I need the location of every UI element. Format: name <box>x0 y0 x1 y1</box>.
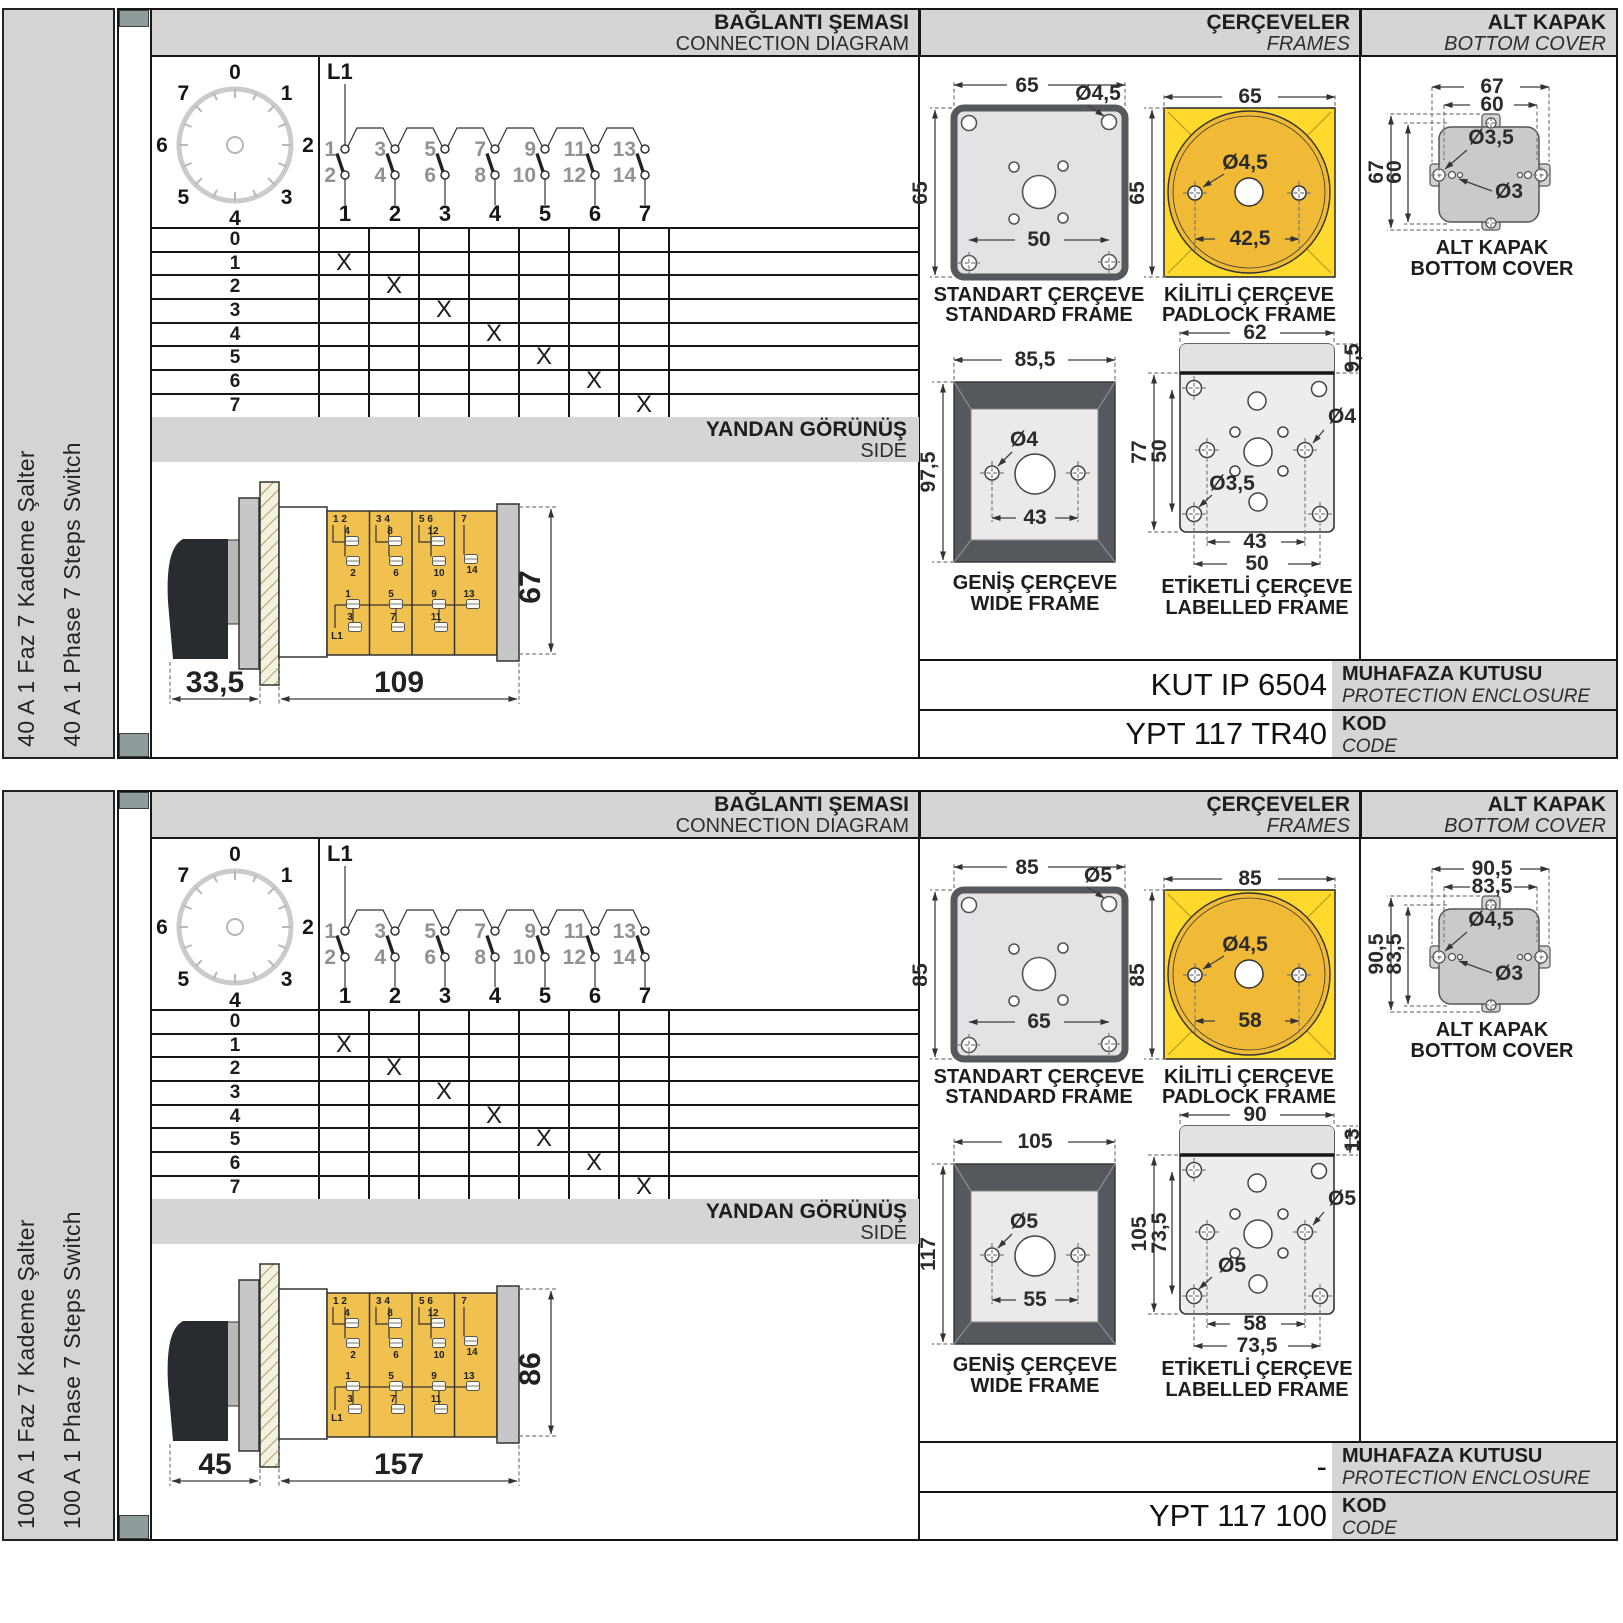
step-cell <box>470 1082 520 1104</box>
dial-pos-2: 2 <box>302 134 314 157</box>
dim-height: 117 <box>917 1237 940 1271</box>
step-cell <box>520 229 570 251</box>
dial-pos-7: 7 <box>178 864 190 887</box>
step-cell <box>520 1106 570 1128</box>
step-cell <box>470 1153 520 1175</box>
dim-hole-right: Ø4 <box>1328 405 1356 428</box>
step-cell <box>520 1035 570 1057</box>
corner-square-top <box>119 10 149 27</box>
step-cell <box>620 371 670 393</box>
dim-height: 65 <box>1126 181 1149 205</box>
step-cell: X <box>470 324 520 346</box>
step-cell <box>570 347 620 369</box>
step-cell <box>320 1153 370 1175</box>
clip-label: 5 <box>388 589 394 600</box>
step-table: 01X2X3X4X5X6X7X <box>152 227 919 419</box>
product-code: YPT 117 TR40 <box>919 711 1332 757</box>
clip-label: 4 <box>344 526 350 537</box>
step-cell <box>520 276 570 298</box>
contact-schematic: L1 1 3 5 7 9 11 13 2 4 <box>320 57 919 227</box>
dim-pitch: 42,5 <box>1230 227 1271 250</box>
labelled-frame-title-tr: ETİKETLİ ÇERÇEVE <box>1161 1357 1352 1380</box>
step-cell: X <box>320 253 370 275</box>
step-cell <box>520 1153 570 1175</box>
pole-number: 4 <box>489 983 502 1008</box>
step-cell-rest <box>670 300 919 322</box>
dim-pitch: 58 <box>1238 1009 1262 1032</box>
dim-width: 62 <box>1243 321 1266 344</box>
step-row: 2X <box>152 276 919 300</box>
step-cell: X <box>370 276 420 298</box>
wide-frame-title-tr: GENİŞ ÇERÇEVE <box>953 1353 1117 1376</box>
side-view-title-en: SIDE <box>860 1223 907 1244</box>
dim-width: 85 <box>1015 856 1039 879</box>
step-row: 5X <box>152 1129 919 1153</box>
labelled-frame-figure: 62 9,5 77 50 Ø4 Ø3,5 43 50 ETİKETLİ ÇERÇ… <box>1142 324 1372 624</box>
step-row: 3X <box>152 1082 919 1106</box>
step-cell <box>420 347 470 369</box>
step-cell <box>420 1153 470 1175</box>
dim-pitch: 50 <box>1027 228 1050 251</box>
pole-number: 5 <box>539 983 551 1008</box>
padlock-frame-figure: 85 Ø4,5 85 58 KİLİTLİ ÇERÇEVE PADLOCK FR… <box>1142 844 1364 1106</box>
pole-number: 7 <box>639 983 651 1008</box>
section-header: BAĞLANTI ŞEMASI CONNECTION DIAGRAM ÇERÇE… <box>152 10 1616 57</box>
section-pair-label: 3 4 <box>376 1296 390 1307</box>
enclosure-label: MUHAFAZA KUTUSU PROTECTION ENCLOSURE <box>1332 661 1616 709</box>
pole-number: 5 <box>539 201 551 226</box>
terminal-bottom: 4 <box>374 946 386 969</box>
step-cell <box>420 1035 470 1057</box>
dial-pos-3: 3 <box>281 968 293 991</box>
dim-length: 109 <box>374 666 424 699</box>
side-view-band: YANDAN GÖRÜNÜŞ SIDE <box>152 1199 919 1244</box>
dim-height: 86 <box>514 1352 547 1385</box>
dim-pitch1: 43 <box>1243 530 1266 553</box>
step-cell <box>420 276 470 298</box>
clip-label: 1 <box>345 1371 351 1382</box>
section-pair-label: 7 <box>461 514 467 525</box>
wide-frame-title-tr: GENİŞ ÇERÇEVE <box>953 571 1117 594</box>
dial-pos-3: 3 <box>281 186 293 209</box>
dial-pos-1: 1 <box>281 82 293 105</box>
dim-width: 65 <box>1015 74 1039 97</box>
corner-square-top <box>119 792 149 809</box>
dial-pos-6: 6 <box>156 916 168 939</box>
step-cell <box>520 1082 570 1104</box>
product-panel-100a: BAĞLANTI ŞEMASI CONNECTION DIAGRAM ÇERÇE… <box>117 790 1618 1541</box>
step-cell <box>520 300 570 322</box>
step-cell <box>620 1129 670 1151</box>
pole-number: 1 <box>339 983 351 1008</box>
enclosure-label-tr: MUHAFAZA KUTUSU <box>1342 663 1616 686</box>
terminal-bottom: 6 <box>424 946 436 969</box>
dial-pos-2: 2 <box>302 916 314 939</box>
step-cell <box>520 253 570 275</box>
dim-height: 97,5 <box>917 451 940 492</box>
dim-width: 65 <box>1238 85 1262 108</box>
dial-pos-0: 0 <box>229 843 241 866</box>
clip-label: 4 <box>344 1308 350 1319</box>
header-cover: ALT KAPAK BOTTOM COVER <box>1360 792 1616 837</box>
step-cell <box>570 1035 620 1057</box>
mounting-plate <box>239 498 259 669</box>
clip-label: 13 <box>463 1371 475 1382</box>
step-cell-rest <box>670 1177 919 1199</box>
pole-number: 1 <box>339 201 351 226</box>
side-view-title-tr: YANDAN GÖRÜNÜŞ <box>706 1200 907 1223</box>
step-cell <box>320 1058 370 1080</box>
clip-label: 11 <box>431 612 442 623</box>
step-cell-rest <box>670 395 919 417</box>
step-cell: X <box>420 300 470 322</box>
enclosure-label-en: PROTECTION ENCLOSURE <box>1342 1468 1616 1489</box>
step-cell <box>520 395 570 417</box>
terminal-bottom: 12 <box>563 946 586 969</box>
terminal-top: 13 <box>613 920 636 943</box>
dim-pitch: 65 <box>1027 1010 1051 1033</box>
shaft <box>279 1289 327 1439</box>
step-cell <box>370 1082 420 1104</box>
terminal-bottom: 4 <box>374 164 386 187</box>
bottom-cover-title-en: BOTTOM COVER <box>1411 1040 1575 1062</box>
step-row-label: 3 <box>152 300 320 322</box>
step-row: 5X <box>152 347 919 371</box>
bottom-cover-figure: 90,5 83,5 90,5 83,5 Ø4,5 Ø3 ALT KAPAK BO… <box>1377 844 1612 1074</box>
step-cell: X <box>620 1177 670 1199</box>
header-connection-tr: BAĞLANTI ŞEMASI <box>714 11 909 34</box>
clip-label: 14 <box>466 1347 478 1358</box>
step-cell <box>570 253 620 275</box>
labelled-frame-strip <box>1180 344 1334 373</box>
switch-handle <box>168 1321 228 1441</box>
labelled-frame-strip <box>1180 1126 1334 1155</box>
supply-label: L1 <box>327 59 353 84</box>
dim-hole-inner: Ø5 <box>1218 1254 1246 1277</box>
padlock-frame-title-tr: KİLİTLİ ÇERÇEVE <box>1164 283 1334 306</box>
step-cell <box>370 1129 420 1151</box>
mounting-plate <box>239 1280 259 1451</box>
terminal-bottom: 10 <box>513 164 536 187</box>
clip-label: 7 <box>390 1394 396 1405</box>
dial-pos-5: 5 <box>178 186 190 209</box>
step-cell: X <box>570 1153 620 1175</box>
standard-frame-title-tr: STANDART ÇERÇEVE <box>934 284 1145 306</box>
step-table: 01X2X3X4X5X6X7X <box>152 1009 919 1201</box>
step-cell <box>420 371 470 393</box>
step-cell <box>570 1011 620 1033</box>
step-cell <box>470 276 520 298</box>
header-connection-tr: BAĞLANTI ŞEMASI <box>714 793 909 816</box>
standard-frame-title-en: STANDARD FRAME <box>945 1086 1132 1108</box>
step-cell <box>620 1106 670 1128</box>
dial-pos-1: 1 <box>281 864 293 887</box>
step-row: 7X <box>152 395 919 419</box>
step-cell <box>370 1035 420 1057</box>
step-cell: X <box>570 371 620 393</box>
step-row-label: 5 <box>152 1129 320 1151</box>
step-cell-rest <box>670 1058 919 1080</box>
step-cell-rest <box>670 1153 919 1175</box>
dim-hole2: Ø3 <box>1495 962 1523 985</box>
header-connection-en: CONNECTION DIAGRAM <box>676 816 909 837</box>
step-cell <box>470 395 520 417</box>
clip-label: 2 <box>350 1350 356 1361</box>
step-cell <box>320 324 370 346</box>
contact-schematic-figure: L1 1 3 5 7 9 11 13 2 4 <box>320 57 919 227</box>
clip-label: 8 <box>387 526 393 537</box>
labelled-frame-title-en: LABELLED FRAME <box>1165 1379 1348 1401</box>
wide-frame-title-en: WIDE FRAME <box>971 593 1100 615</box>
step-cell <box>470 229 520 251</box>
step-cell <box>320 276 370 298</box>
dim-pitch2: 50 <box>1245 552 1268 575</box>
step-cell <box>570 1082 620 1104</box>
bottom-cover-title-tr: ALT KAPAK <box>1436 237 1549 259</box>
side-view-title-en: SIDE <box>860 441 907 462</box>
labelled-frame-figure: 90 13 105 73,5 Ø5 Ø5 58 73,5 ETİKETLİ ÇE… <box>1142 1106 1372 1406</box>
terminal-bottom: 8 <box>474 946 486 969</box>
terminal-top: 5 <box>424 138 436 161</box>
code-label-en: CODE <box>1342 736 1616 757</box>
step-cell <box>570 1177 620 1199</box>
panel-hatch <box>260 1264 279 1467</box>
dim-hole-inner: Ø3,5 <box>1209 472 1255 495</box>
panel-hatch <box>260 482 279 685</box>
step-cell <box>620 1035 670 1057</box>
step-cell <box>470 253 520 275</box>
dim-hole-right: Ø5 <box>1328 1187 1356 1210</box>
bottom-cover-title-en: BOTTOM COVER <box>1411 258 1575 280</box>
terminal-top: 9 <box>524 138 536 161</box>
step-cell-rest <box>670 229 919 251</box>
contact-terminal-labels: 1 3 5 7 9 11 13 2 4 6 8 10 12 14 1 2 3 4… <box>324 138 651 226</box>
rotary-dial-box: 0 1 2 3 4 5 6 7 <box>152 839 320 1009</box>
step-cell-rest <box>670 276 919 298</box>
dial-pos-6: 6 <box>156 134 168 157</box>
enclosure-label-en: PROTECTION ENCLOSURE <box>1342 686 1616 707</box>
dim-width: 90 <box>1243 1103 1266 1126</box>
step-row: 1X <box>152 1035 919 1059</box>
step-cell <box>620 1153 670 1175</box>
section-pair-label: 1 2 <box>333 514 347 525</box>
step-cell <box>520 1177 570 1199</box>
enclosure-label: MUHAFAZA KUTUSU PROTECTION ENCLOSURE <box>1332 1443 1616 1491</box>
step-cell: X <box>520 1129 570 1151</box>
header-frames-tr: ÇERÇEVELER <box>1206 11 1350 34</box>
rotary-dial-figure: 0 1 2 3 4 5 6 7 <box>152 57 318 227</box>
terminal-bottom: 14 <box>613 164 637 187</box>
step-row-label: 3 <box>152 1082 320 1104</box>
step-cell <box>520 1058 570 1080</box>
step-cell <box>620 1082 670 1104</box>
step-cell <box>570 324 620 346</box>
step-cell <box>320 1011 370 1033</box>
clip-label: 12 <box>427 1308 439 1319</box>
dim-length: 157 <box>374 1448 424 1481</box>
section-header: BAĞLANTI ŞEMASI CONNECTION DIAGRAM ÇERÇE… <box>152 792 1616 839</box>
switch-handle <box>168 539 228 659</box>
dim-hole: Ø5 <box>1084 864 1112 887</box>
step-cell <box>370 324 420 346</box>
header-frames-en: FRAMES <box>1267 34 1350 55</box>
standard-frame-title-tr: STANDART ÇERÇEVE <box>934 1066 1145 1088</box>
product-code: YPT 117 100 <box>919 1493 1332 1539</box>
step-cell <box>620 324 670 346</box>
step-cell: X <box>370 1058 420 1080</box>
step-cell <box>320 229 370 251</box>
step-cell <box>370 347 420 369</box>
pole-number: 4 <box>489 201 502 226</box>
step-cell <box>420 1058 470 1080</box>
dim-strip: 9,5 <box>1341 343 1364 373</box>
pole-number: 2 <box>389 983 401 1008</box>
terminal-bottom: 14 <box>613 946 637 969</box>
rotary-dial-figure: 0 1 2 3 4 5 6 7 <box>152 839 318 1009</box>
step-cell <box>370 1011 420 1033</box>
step-cell <box>620 229 670 251</box>
code-row: YPT 117 TR40 KOD CODE <box>919 709 1616 757</box>
labelled-frame-title-tr: ETİKETLİ ÇERÇEVE <box>1161 575 1352 598</box>
step-cell <box>470 1177 520 1199</box>
step-cell-rest <box>670 324 919 346</box>
code-label-tr: KOD <box>1342 713 1616 736</box>
step-row: 3X <box>152 300 919 324</box>
dim-w2: 60 <box>1480 93 1503 116</box>
dim-height: 65 <box>909 181 932 205</box>
side-view-figure: 1 2 4 2 1 3 3 4 8 6 5 7 5 6 12 10 9 11 7… <box>152 1244 919 1540</box>
code-label-tr: KOD <box>1342 1495 1616 1518</box>
dim-height2: 50 <box>1148 439 1171 462</box>
step-row: 1X <box>152 253 919 277</box>
step-row-label: 6 <box>152 371 320 393</box>
step-row-label: 7 <box>152 1177 320 1199</box>
header-cover-tr: ALT KAPAK <box>1488 793 1606 816</box>
step-cell-rest <box>670 1106 919 1128</box>
product-name-tr: 100 A 1 Faz 7 Kademe Şalter <box>13 1219 40 1529</box>
terminal-bottom: 12 <box>563 164 586 187</box>
dim-width: 85,5 <box>1015 348 1056 371</box>
step-cell-rest <box>670 1011 919 1033</box>
wide-frame-figure: 85,5 Ø4 97,5 43 GENİŞ ÇERÇEVE WIDE FRAME <box>917 334 1167 624</box>
section-pair-label: 3 4 <box>376 514 390 525</box>
clip-label: 6 <box>393 1350 399 1361</box>
step-row: 6X <box>152 371 919 395</box>
dim-hole1: Ø3,5 <box>1468 126 1514 149</box>
step-cell <box>370 1153 420 1175</box>
clip-label: 6 <box>393 568 399 579</box>
standard-frame-title-en: STANDARD FRAME <box>945 304 1132 326</box>
contact-schematic-figure: L1 1 3 5 7 9 11 13 2 4 <box>320 839 919 1009</box>
step-cell <box>420 1011 470 1033</box>
step-cell <box>420 1129 470 1151</box>
section-pair-label: 5 6 <box>419 514 433 525</box>
step-cell <box>620 1058 670 1080</box>
header-frames: ÇERÇEVELER FRAMES <box>919 10 1360 55</box>
step-cell <box>470 347 520 369</box>
step-cell-rest <box>670 253 919 275</box>
step-row-label: 1 <box>152 253 320 275</box>
terminal-bottom: 2 <box>324 946 336 969</box>
dim-hole: Ø4,5 <box>1222 933 1268 956</box>
step-cell <box>570 229 620 251</box>
step-cell-rest <box>670 1035 919 1057</box>
terminal-bottom: 2 <box>324 164 336 187</box>
step-cell <box>570 1106 620 1128</box>
contact-terminal-labels: 1 3 5 7 9 11 13 2 4 6 8 10 12 14 1 2 3 4… <box>324 920 651 1008</box>
clip-label: 2 <box>350 568 356 579</box>
terminal-top: 5 <box>424 920 436 943</box>
step-cell <box>520 1011 570 1033</box>
clip-label: 12 <box>427 526 439 537</box>
step-cell-rest <box>670 1129 919 1151</box>
terminal-top: 3 <box>374 920 386 943</box>
terminal-top: 13 <box>613 138 636 161</box>
wide-frame-figure: 105 Ø5 117 55 GENİŞ ÇERÇEVE WIDE FRAME <box>917 1116 1167 1406</box>
code-label: KOD CODE <box>1332 1493 1616 1539</box>
clip-label: 3 <box>347 1394 353 1405</box>
step-cell: X <box>470 1106 520 1128</box>
product-panel-40a: BAĞLANTI ŞEMASI CONNECTION DIAGRAM ÇERÇE… <box>117 8 1618 759</box>
dim-pitch1: 58 <box>1243 1312 1267 1335</box>
step-cell <box>320 1082 370 1104</box>
step-cell <box>520 371 570 393</box>
step-cell <box>370 229 420 251</box>
step-row-label: 2 <box>152 1058 320 1080</box>
step-cell <box>320 1177 370 1199</box>
section-pair-label: 5 6 <box>419 1296 433 1307</box>
step-cell <box>370 300 420 322</box>
step-cell <box>520 324 570 346</box>
step-cell-rest <box>670 371 919 393</box>
labelled-frame-title-en: LABELLED FRAME <box>1165 597 1348 619</box>
step-cell <box>370 1106 420 1128</box>
pole-number: 3 <box>439 983 451 1008</box>
step-row: 6X <box>152 1153 919 1177</box>
dim-hole1: Ø4,5 <box>1468 908 1514 931</box>
step-cell <box>370 253 420 275</box>
side-view-title-tr: YANDAN GÖRÜNÜŞ <box>706 418 907 441</box>
step-cell <box>420 253 470 275</box>
header-cover-en: BOTTOM COVER <box>1444 34 1606 55</box>
step-cell <box>620 276 670 298</box>
left-strip <box>119 10 152 757</box>
supply-label: L1 <box>331 631 343 642</box>
step-cell <box>570 300 620 322</box>
step-row-label: 4 <box>152 1106 320 1128</box>
step-cell <box>420 229 470 251</box>
product-sidebar-40a: 40 A 1 Faz 7 Kademe Şalter 40 A 1 Phase … <box>2 8 115 759</box>
switch-side-drawing <box>168 1264 519 1467</box>
wide-frame-title-en: WIDE FRAME <box>971 1375 1100 1397</box>
header-connection-en: CONNECTION DIAGRAM <box>676 34 909 55</box>
dim-pitch2: 73,5 <box>1237 1334 1278 1357</box>
terminal-bottom: 6 <box>424 164 436 187</box>
dim-hole2: Ø3 <box>1495 180 1523 203</box>
step-cell <box>320 1106 370 1128</box>
padlock-frame-figure: 65 Ø4,5 65 42,5 KİLİTLİ ÇERÇEVE PADLOCK … <box>1142 62 1364 324</box>
header-connection: BAĞLANTI ŞEMASI CONNECTION DIAGRAM <box>152 792 919 837</box>
dim-hole: Ø4 <box>1010 428 1038 451</box>
step-row: 0 <box>152 229 919 253</box>
step-cell <box>470 1058 520 1080</box>
dim-hole: Ø4,5 <box>1222 151 1268 174</box>
dim-depth: 45 <box>198 1448 231 1481</box>
section-pair-label: 7 <box>461 1296 467 1307</box>
step-row-label: 6 <box>152 1153 320 1175</box>
side-view-band: YANDAN GÖRÜNÜŞ SIDE <box>152 417 919 462</box>
step-row: 0 <box>152 1011 919 1035</box>
